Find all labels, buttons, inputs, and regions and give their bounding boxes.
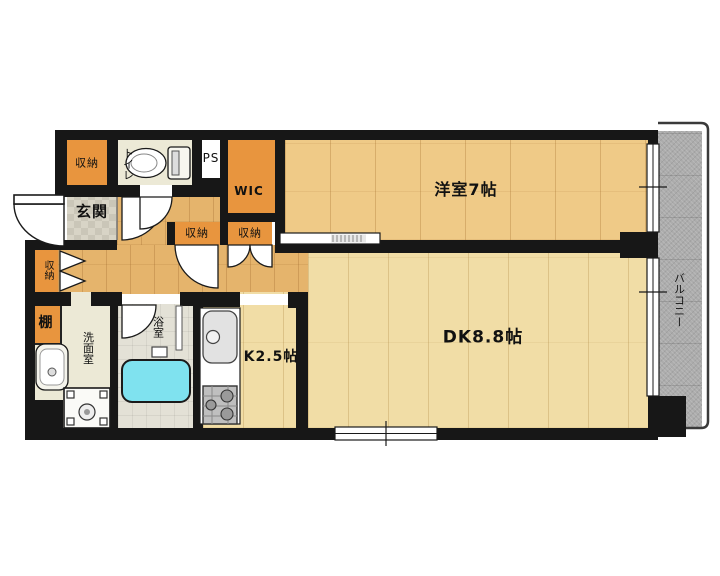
western-room-sliding-door [280,233,380,244]
label-storage-mid-right: 収納 [238,228,262,239]
label-entrance: 玄関 [76,205,108,220]
toilet-door-arc [140,197,172,229]
label-storage-top: 収納 [75,158,99,169]
label-storage-hall: 収納 [42,260,52,280]
kitchen-sink-icon [203,311,237,363]
storage-hall-folding-doors [60,251,85,291]
label-dk: DK8.8帖 [443,330,523,347]
label-storage-mid-left: 収納 [185,228,209,239]
floor-plan: 収納 トイレ PS WIC 玄関 収納 収納 収納 棚 洗面室 浴室 K2.5帖… [0,0,720,576]
dk-window [639,258,667,396]
label-kitchen: K2.5帖 [244,350,299,364]
label-toilet: トイレ [123,148,134,181]
kitchen-counter [200,308,240,424]
fixtures-layer [0,0,720,576]
label-shelf: 棚 [39,316,54,330]
bathtub-icon [122,360,190,402]
storage-mid-left-door-arc [175,245,218,288]
toilet-doorway [140,185,172,197]
stove-icon [203,386,237,424]
dk-bottom-window [335,421,437,446]
label-pipe-space: PS [203,152,220,164]
washbasin-icon [36,344,68,390]
label-washroom: 洗面室 [83,332,94,365]
label-bathroom: 浴室 [153,316,164,338]
washing-machine-pan-icon [64,388,110,428]
toilet-icon [126,147,190,179]
entrance-door [14,195,64,246]
label-balcony: バルコニー [674,273,685,328]
label-western-room: 洋室7帖 [434,182,497,198]
western-room-window [639,144,667,232]
storage-mid-right-door-arc-2 [250,245,272,267]
label-wic: WIC [234,185,264,197]
storage-mid-right-door-arc-1 [228,245,250,267]
